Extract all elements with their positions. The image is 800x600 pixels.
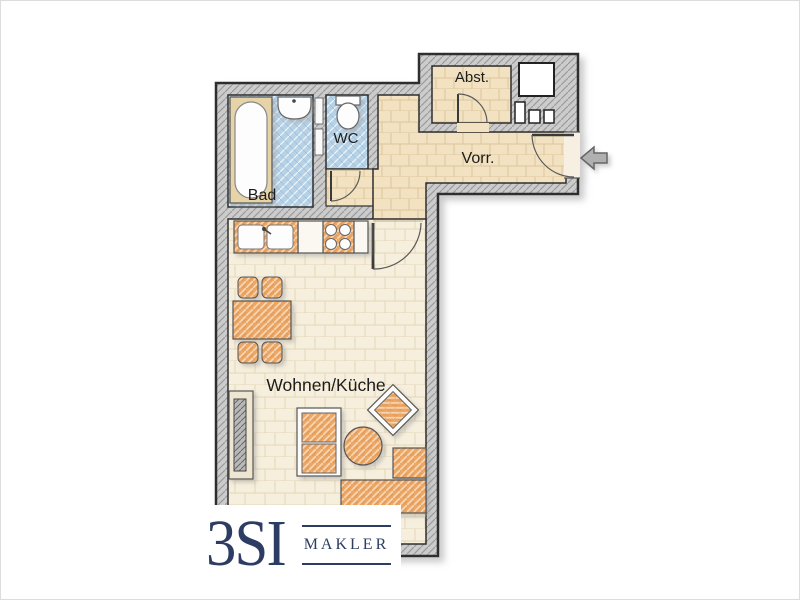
floor-plan-page: Bad WC Abst. Vorr. Wohnen/Küche 3SI MAKL… [0, 0, 800, 600]
logo-division-text: MAKLER [304, 537, 390, 553]
sofa-icon [297, 408, 341, 476]
toilet-icon [336, 96, 360, 129]
dining-table-icon [233, 301, 291, 339]
agency-logo: 3SI MAKLER [192, 505, 401, 582]
logo-brand-text: 3SI [206, 511, 285, 577]
kitchen-sink-icon [234, 221, 298, 253]
label-wohnen-kueche: Wohnen/Küche [266, 375, 385, 395]
label-abstellraum: Abst. [455, 69, 489, 86]
label-bad: Bad [248, 187, 276, 204]
logo-division-block: MAKLER [302, 525, 392, 565]
label-wc: WC [334, 130, 359, 147]
label-vorraum: Vorr. [462, 150, 495, 167]
abst-opening [457, 123, 489, 132]
entrance-arrow-icon [581, 147, 607, 169]
washbasin-icon [278, 97, 311, 119]
entrance-opening [564, 132, 580, 178]
radiator-icon [229, 391, 253, 479]
shaft [519, 63, 554, 96]
coffee-table-icon [344, 427, 382, 465]
stove-icon [323, 221, 354, 253]
